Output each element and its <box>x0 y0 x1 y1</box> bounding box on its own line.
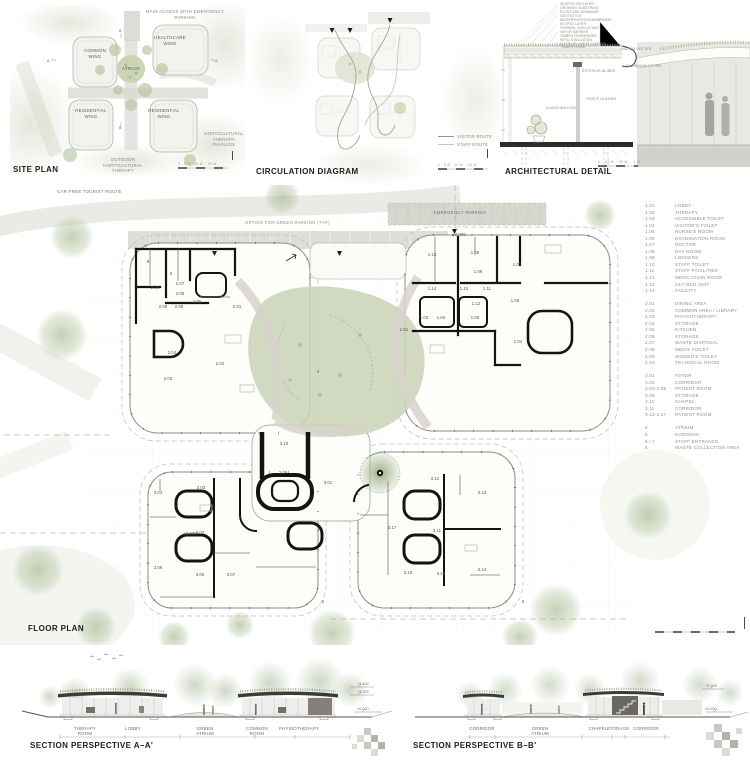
detail-scale-label: 0 . .02 M . .05 M .. .1 M <box>598 160 640 164</box>
glass-mullion-callout: GLASS MULLION <box>546 106 576 110</box>
emergency-parking-label: EMERGENCY PARKING <box>434 210 487 215</box>
circulation-title: CIRCULATION DIAGRAM <box>256 168 359 176</box>
room-number-label: 4 <box>317 370 319 374</box>
room-number-label: 1.06 <box>511 299 520 303</box>
room-number-label: 3.04 <box>154 491 163 495</box>
site-access-label: MAIN ACCESS WITH EMERGENCY PARKING <box>146 9 224 20</box>
section-room-label: STORAGE <box>607 726 630 731</box>
room-number-label: 1.04 <box>437 316 446 320</box>
legend-group-1: 1.01LOBBY1.02THERAPY1.03ACCESSIBLE TOILE… <box>645 203 748 295</box>
room-number-label: 1.10 <box>460 287 469 291</box>
elevation-label: +3,200 <box>357 691 369 695</box>
section-room-label: GREEN ATRIUM <box>531 726 549 736</box>
room-legend: 1.01LOBBY1.02THERAPY1.03ACCESSIBLE TOILE… <box>645 203 748 458</box>
exterior-blinds-callout: EXTERIOR BLINDS <box>582 69 616 73</box>
aluminium-cover-callout: ALUMINIUM COVER <box>626 64 661 68</box>
room-number-label: 3.05 <box>196 573 205 577</box>
legend-row: 1.14FACILITY <box>645 288 748 295</box>
room-number-label: 3.13 <box>478 491 487 495</box>
circulation-legend-row: VISITOR ROUTE <box>438 134 492 139</box>
triple-glazing-callout: TRIPLE GLAZING <box>586 97 617 101</box>
green-parking-label: OPTION FOR GREEN PARKING (TYP) <box>245 220 330 225</box>
room-number-label: 3.10 <box>280 442 289 446</box>
detail-title: ARCHITECTURAL DETAIL <box>505 168 612 176</box>
legend-label: WASTE COLLECTION AREA <box>675 445 740 452</box>
sheet-edge-tick <box>744 617 745 629</box>
site-pavilion-label: HORTICULTURAL THERAPY PAVILION <box>204 131 244 148</box>
room-number-label: 5 <box>322 600 324 604</box>
room-number-label: 6 <box>170 272 172 276</box>
legend-code: 3.12-3.17 <box>645 412 675 419</box>
legend-code: 1.14 <box>645 288 675 295</box>
room-number-label: 1.07 <box>513 263 522 267</box>
car-free-route-label: CAR-FREE TOURIST ROUTE <box>57 189 122 194</box>
route-line-swatch <box>438 144 454 145</box>
floor-plan-room-overlay: 2.102.072.062.092.082.052.012.042.022.03… <box>0 185 750 645</box>
detail-layer-label: TIMBER FINISH <box>560 46 611 50</box>
elevation-label: +4,400 <box>357 683 369 687</box>
site-atrium-label: ATRIUM <box>122 66 140 72</box>
svg-text:B: B <box>119 126 122 130</box>
section-b-title: SECTION PERSPECTIVE B–B' <box>413 742 537 750</box>
room-number-label: 1.01 <box>400 328 409 332</box>
room-number-label: 3.15 <box>437 572 446 576</box>
section-room-label: CHAPEL <box>589 726 608 731</box>
room-number-label: ±0,000 <box>183 532 196 536</box>
panel-edge-tick <box>487 149 488 158</box>
legend-group-4: 4ATRIUM5GARDENS6 / 7STAFF ENTRANCE8WASTE… <box>645 425 748 451</box>
legend-group-2: 2.01DINING AREA2.02COMMON AREA / LIBRARY… <box>645 301 748 366</box>
room-number-label: 1.11 <box>483 287 491 291</box>
room-number-label: 1.09 <box>474 270 483 274</box>
room-number-label: 1.14 <box>428 287 437 291</box>
studio-logo-icon <box>352 726 388 758</box>
room-number-label: 2.10 <box>151 286 160 290</box>
room-number-label: 3.17 <box>388 526 397 530</box>
elevation-label: ±0,000 <box>357 708 369 712</box>
room-number-label: 3.12 <box>431 477 440 481</box>
legend-row: 2.10TECHNICAL ROOM <box>645 360 748 367</box>
legend-label: TECHNICAL ROOM <box>675 360 719 367</box>
room-number-label: ±0,000 <box>452 233 465 237</box>
room-number-label: 2.03 <box>164 377 173 381</box>
presentation-sheet: AA BB MAIN ACCESS WITH EMERGENCY PARKING… <box>0 0 750 760</box>
detail-layers-list: VEGETATION LAYERGROWING SUBSTRATEFILTER … <box>560 3 611 50</box>
room-number-label: 2.08 <box>175 305 184 309</box>
site-outdoor-label: OUTDOOR HORTICULTURAL THERAPY <box>103 157 143 174</box>
section-room-label: GREEN ATRIUM <box>196 726 214 736</box>
site-common-wing-label: COMMON WING <box>84 48 106 59</box>
room-number-label: 3.14 <box>478 568 487 572</box>
room-number-label: 2.05 <box>193 300 202 304</box>
legend-row: 3.12-3.17PATIENT ROOM <box>645 412 748 419</box>
legend-label: FACILITY <box>675 288 697 295</box>
route-label: STAFF ROUTE <box>457 142 488 147</box>
room-number-label: 1.05 <box>471 316 480 320</box>
section-room-label: CORRIDOR <box>469 726 495 731</box>
room-number-label: 5 <box>522 600 524 604</box>
legend-label: PATIENT ROOM <box>675 412 712 419</box>
floor-plan-scale-bar <box>655 631 735 633</box>
room-number-label: 2.01 <box>233 305 242 309</box>
room-number-label: 1.03 <box>420 316 429 320</box>
studio-logo-icon <box>700 722 744 760</box>
room-number-label: 2.07 <box>176 282 185 286</box>
site-plan-title: SITE PLAN <box>13 166 58 174</box>
room-number-label: 3.09 <box>279 471 288 475</box>
room-number-label: 3.02 <box>196 531 205 535</box>
room-number-label: 1.13 <box>428 253 437 257</box>
room-number-label: 3.08 <box>154 566 163 570</box>
room-number-label: 3.07 <box>227 573 236 577</box>
elevation-label: ±0,000 <box>705 708 717 712</box>
svg-text:A: A <box>47 59 50 63</box>
section-room-label: LOBBY <box>125 726 141 731</box>
site-healthcare-wing-label: HEALTHCARE WING <box>154 35 186 46</box>
legend-code: 8 <box>645 445 675 452</box>
circulation-legend: VISITOR ROUTE STAFF ROUTE <box>438 134 492 151</box>
svg-text:B: B <box>119 29 122 33</box>
section-room-label: THERAPY ROOM <box>74 726 96 736</box>
room-number-label: 3.11 <box>433 529 441 533</box>
legend-group-3: 3.01FOYER3.02CORRIDOR3.03-3.08PATIENT RO… <box>645 373 748 419</box>
floor-plan-title: FLOOR PLAN <box>28 625 84 633</box>
room-number-label: 3.03 <box>197 486 206 490</box>
site-scale-label: 0 . 5 M . 10 M .. 30 M <box>178 162 217 166</box>
room-number-label: 8 <box>147 260 149 264</box>
route-line-swatch <box>438 136 454 137</box>
section-room-label: COMMON ROOM <box>246 726 268 736</box>
hidden-gutter-callout: HIDDEN GUTTER <box>621 47 651 51</box>
room-number-label: 3.01 <box>324 481 333 485</box>
room-number-label: 2.02 <box>216 362 225 366</box>
detail-drawing <box>500 0 750 185</box>
legend-row: 8WASTE COLLECTION AREA <box>645 445 748 452</box>
room-number-label: 1.08 <box>471 251 480 255</box>
room-number-label: 2.06 <box>176 292 185 296</box>
site-scale-bar <box>178 167 228 169</box>
site-plan-drawing: AA BB <box>10 5 245 175</box>
room-number-label: 1.12 <box>472 302 481 306</box>
circulation-scale-bar <box>438 168 488 170</box>
site-residential-wing-right-label: RESIDENTIAL WING <box>148 108 180 119</box>
route-label: VISITOR ROUTE <box>457 134 492 139</box>
circulation-drawing <box>250 0 500 185</box>
room-number-label: 1.02 <box>514 340 523 344</box>
section-room-label: CORRIDOR <box>633 726 659 731</box>
site-residential-wing-left-label: RESIDENTIAL WING <box>75 108 107 119</box>
room-number-label: 2.09 <box>159 305 168 309</box>
room-number-label: 7 <box>200 272 202 276</box>
section-a-title: SECTION PERSPECTIVE A–A' <box>30 742 153 750</box>
section-room-label: PHYSIOTHERAPY <box>279 726 319 731</box>
room-number-label: 3.16 <box>404 571 413 575</box>
elevation-label: +3,200 <box>705 685 717 689</box>
circulation-legend-row: STAFF ROUTE <box>438 142 492 147</box>
circulation-scale-label: 0 . 5 M . 10 M .. 30 M <box>438 163 477 167</box>
room-number-label: 2.04 <box>168 351 177 355</box>
legend-code: 2.10 <box>645 360 675 367</box>
